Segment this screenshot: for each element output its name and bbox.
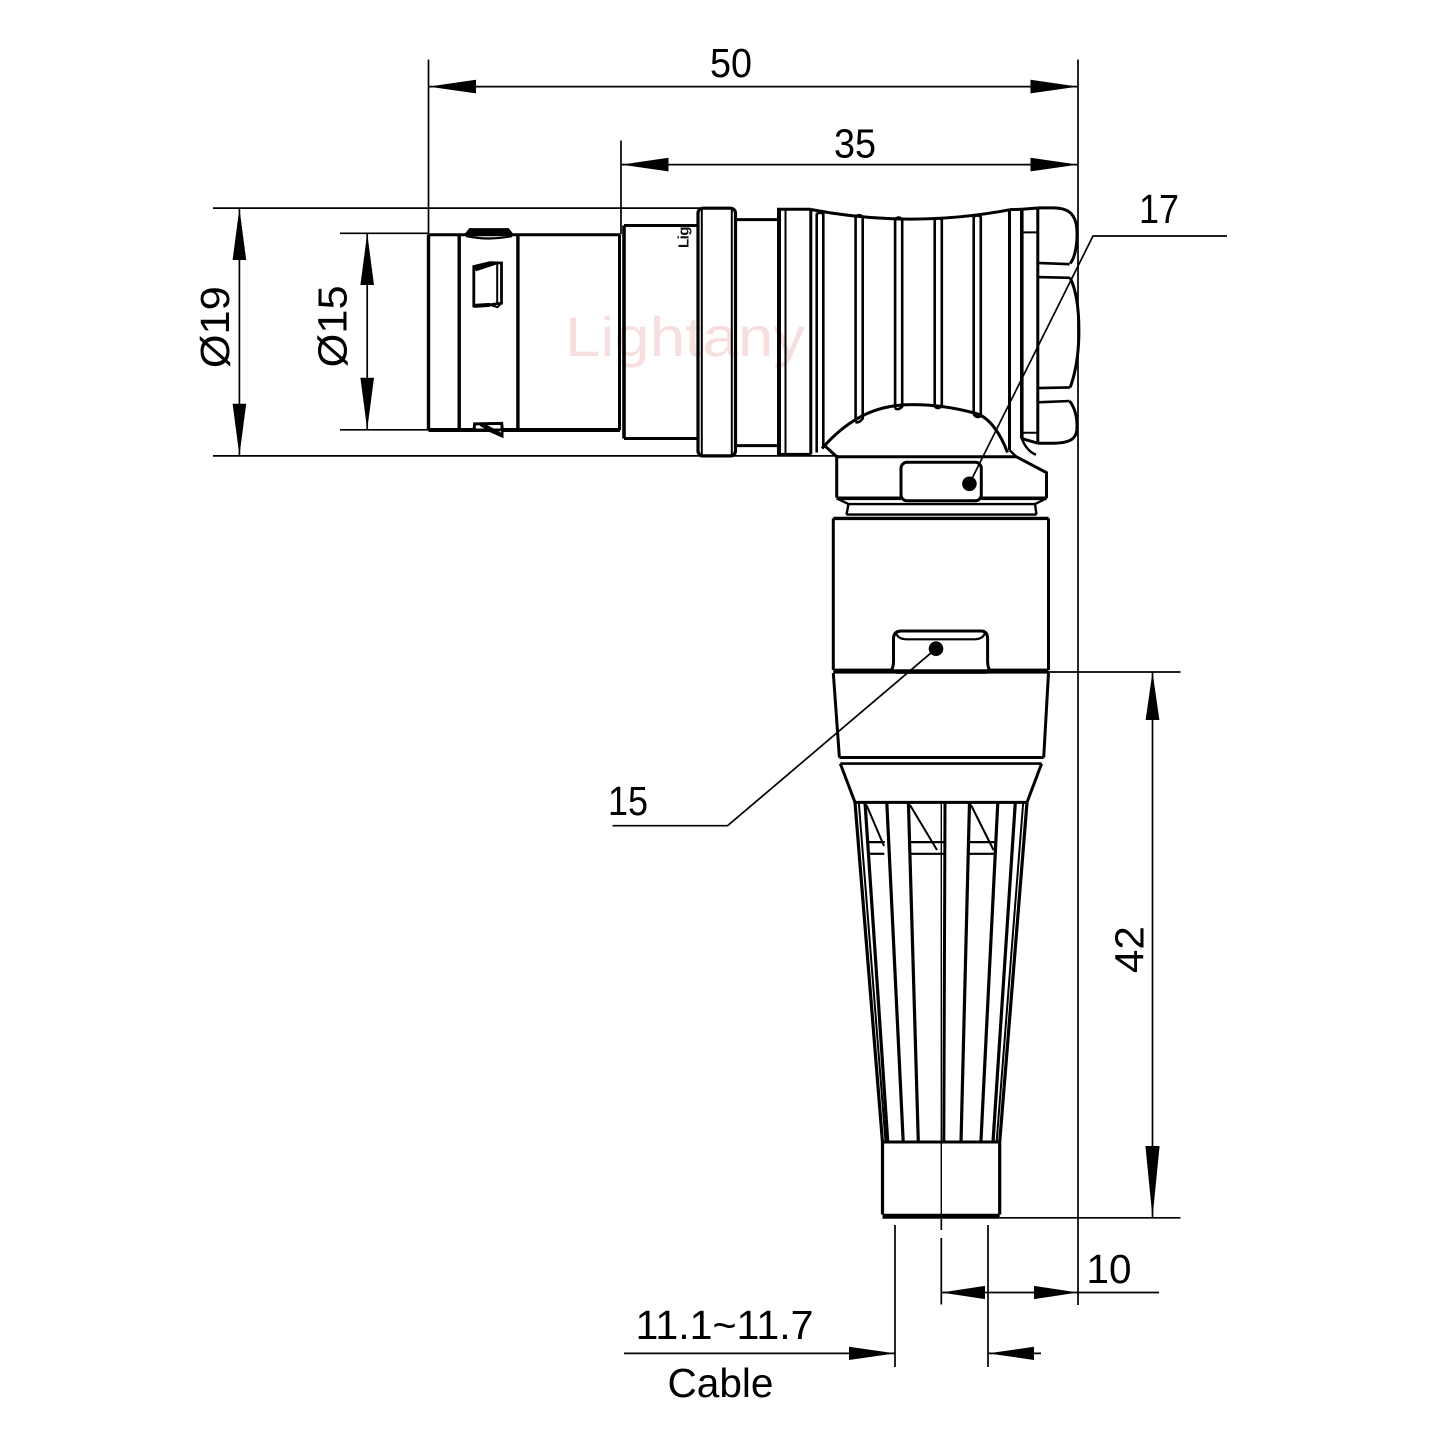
svg-text:42: 42 — [1107, 926, 1153, 973]
svg-text:35: 35 — [834, 121, 876, 167]
svg-text:Ø19: Ø19 — [192, 286, 238, 368]
svg-text:50: 50 — [710, 40, 752, 86]
svg-text:10: 10 — [1087, 1246, 1132, 1292]
svg-text:Ø15: Ø15 — [310, 285, 356, 367]
svg-text:15: 15 — [608, 778, 648, 824]
svg-text:17: 17 — [1139, 186, 1179, 232]
svg-text:Cable: Cable — [668, 1360, 774, 1406]
svg-text:Lig: Lig — [676, 227, 693, 248]
svg-text:11.1~11.7: 11.1~11.7 — [636, 1302, 814, 1348]
svg-text:Lightany: Lightany — [565, 305, 805, 368]
